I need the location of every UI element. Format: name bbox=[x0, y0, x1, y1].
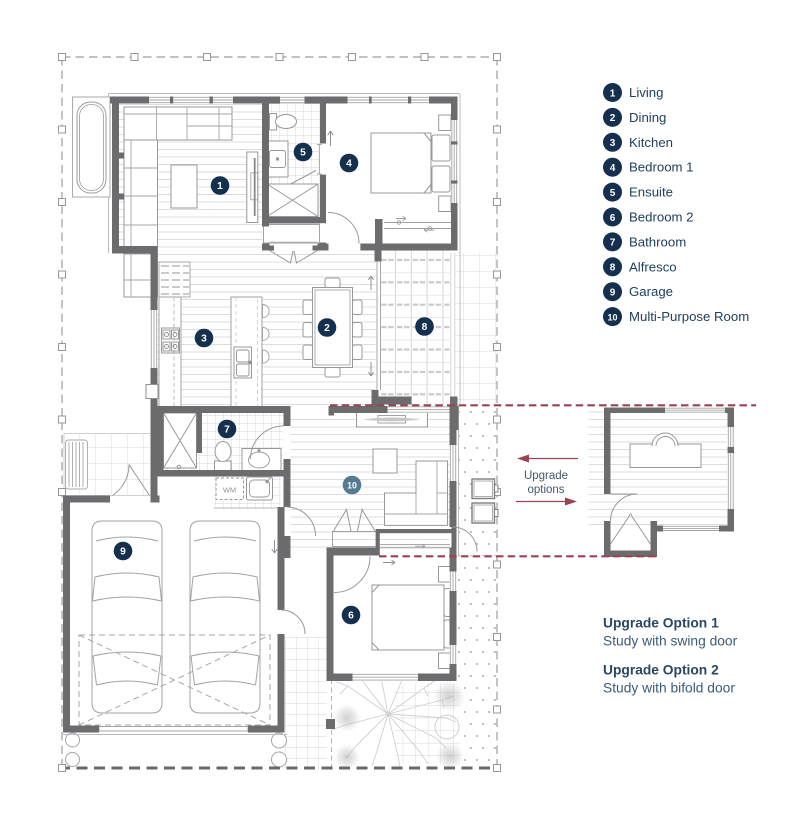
svg-text:Upgrade Option 1: Upgrade Option 1 bbox=[603, 616, 719, 631]
svg-text:10: 10 bbox=[347, 481, 357, 491]
svg-text:6: 6 bbox=[348, 611, 354, 622]
svg-text:Garage: Garage bbox=[629, 284, 673, 299]
svg-text:6: 6 bbox=[610, 213, 616, 224]
svg-text:7: 7 bbox=[610, 238, 616, 249]
svg-text:9: 9 bbox=[610, 288, 616, 299]
svg-text:7: 7 bbox=[224, 425, 230, 436]
svg-text:Alfresco: Alfresco bbox=[629, 259, 677, 274]
svg-text:Bedroom 1: Bedroom 1 bbox=[629, 160, 694, 175]
svg-text:Study with swing door: Study with swing door bbox=[603, 634, 738, 649]
svg-text:2: 2 bbox=[324, 323, 330, 334]
svg-text:3: 3 bbox=[201, 334, 207, 345]
svg-text:Ensuite: Ensuite bbox=[629, 185, 673, 200]
svg-text:Multi-Purpose Room: Multi-Purpose Room bbox=[629, 309, 749, 324]
svg-text:Upgrade: Upgrade bbox=[524, 470, 568, 482]
svg-text:1: 1 bbox=[610, 88, 616, 99]
svg-text:Living: Living bbox=[629, 85, 663, 100]
svg-text:Dining: Dining bbox=[629, 110, 666, 125]
svg-text:options: options bbox=[527, 484, 564, 496]
svg-text:WM: WM bbox=[223, 486, 236, 495]
svg-text:4: 4 bbox=[346, 159, 352, 170]
svg-text:Bedroom 2: Bedroom 2 bbox=[629, 210, 694, 225]
svg-text:Bathroom: Bathroom bbox=[629, 234, 686, 249]
svg-text:1: 1 bbox=[217, 181, 223, 192]
svg-text:2: 2 bbox=[610, 113, 616, 124]
svg-text:4: 4 bbox=[610, 163, 616, 174]
svg-text:9: 9 bbox=[120, 547, 126, 558]
svg-text:Kitchen: Kitchen bbox=[629, 135, 673, 150]
svg-text:3: 3 bbox=[610, 138, 616, 149]
svg-text:Upgrade Option 2: Upgrade Option 2 bbox=[603, 663, 719, 678]
svg-text:8: 8 bbox=[610, 263, 616, 274]
svg-text:5: 5 bbox=[610, 188, 616, 199]
svg-text:Study with bifold door: Study with bifold door bbox=[603, 681, 735, 696]
svg-text:10: 10 bbox=[607, 312, 617, 322]
svg-text:8: 8 bbox=[422, 322, 428, 333]
svg-text:5: 5 bbox=[300, 148, 306, 159]
